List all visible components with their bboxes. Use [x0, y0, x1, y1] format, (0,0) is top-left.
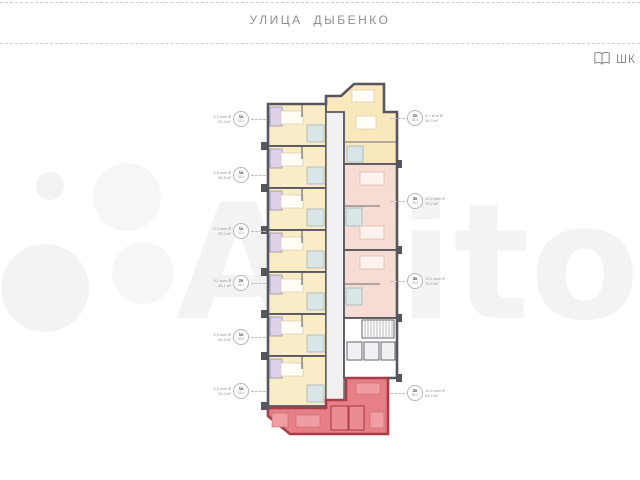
- wet-zone: [307, 125, 324, 142]
- connector-line: [390, 118, 405, 119]
- bathroom: [346, 208, 362, 226]
- unit-pricing: 10,8 млн ₽ 64,9 м²: [425, 388, 445, 399]
- unit-area: 76,5 м²: [425, 281, 445, 286]
- corridor: [326, 104, 344, 404]
- unit-pricing: 6,5 млн ₽ 34,0 м²: [213, 386, 231, 397]
- unit-badge-area: 64,9: [412, 394, 418, 397]
- unit-rooms-badge: 1к 36,8: [233, 167, 249, 183]
- wet-zone: [307, 209, 324, 226]
- unit-pricing: 6,9 млн ₽ 36,8 м²: [213, 332, 231, 343]
- unit-pricing: 12,4 млн ₽ 78,2 м²: [425, 196, 445, 207]
- connector-line: [251, 119, 266, 120]
- connector-line: [390, 281, 405, 282]
- unit-label-left[interactable]: 6,3 млн ₽ 32,4 м² 1к 32,4: [213, 223, 266, 239]
- furniture: [356, 383, 380, 394]
- furniture: [281, 111, 303, 124]
- unit-label-left[interactable]: 6,9 млн ₽ 36,8 м² 1к 36,8: [213, 329, 266, 345]
- unit-badge-area: 76,5: [412, 282, 418, 285]
- unit-rooms-badge: 3к 78,2: [407, 193, 423, 209]
- furniture: [281, 153, 303, 166]
- connector-line: [390, 201, 405, 202]
- unit-badge-area: 36,8: [238, 338, 244, 341]
- inner-room: [349, 406, 364, 430]
- furniture: [281, 363, 303, 376]
- apartment-left-4[interactable]: [268, 230, 326, 272]
- apartment-left-3[interactable]: [268, 188, 326, 230]
- building-floor-plan: [0, 0, 640, 480]
- unit-rooms-badge: 1к 34,0: [233, 383, 249, 399]
- bathroom: [270, 317, 282, 336]
- connector-line: [251, 231, 266, 232]
- connector-line: [251, 283, 266, 284]
- unit-pricing: 6,8 млн ₽ 36,8 м²: [213, 170, 231, 181]
- floorplan-screen: УЛИЦА ДЫБЕНКО ШК Avito: [0, 0, 640, 480]
- bathroom: [270, 149, 282, 168]
- furniture: [272, 413, 288, 427]
- connector-line: [251, 337, 266, 338]
- stair-elevator-core: [344, 318, 397, 378]
- unit-rooms-badge: 2к 45,1: [233, 275, 249, 291]
- unit-label-right[interactable]: 3к 78,2 12,4 млн ₽ 78,2 м²: [390, 193, 445, 209]
- wet-zone: [307, 251, 324, 268]
- furniture: [360, 226, 384, 239]
- unit-label-right[interactable]: 3к 76,5 12,1 млн ₽ 76,5 м²: [390, 273, 445, 289]
- furniture: [281, 321, 303, 334]
- bathroom: [347, 146, 363, 162]
- unit-label-left[interactable]: 6,8 млн ₽ 36,8 м² 1к 36,8: [213, 167, 266, 183]
- bathroom: [270, 191, 282, 210]
- apartment-left-6[interactable]: [268, 314, 326, 356]
- unit-rooms-badge: 1к 32,4: [233, 111, 249, 127]
- unit-area: 58,3 м²: [425, 118, 443, 123]
- bathroom: [270, 359, 282, 378]
- bathroom: [270, 107, 282, 126]
- apartment-left-7[interactable]: [268, 356, 326, 406]
- unit-badge-area: 32,4: [238, 232, 244, 235]
- unit-label-right[interactable]: 2к 64,9 10,8 млн ₽ 64,9 м²: [390, 385, 445, 401]
- unit-pricing: 8,1 млн ₽ 45,1 м²: [213, 278, 231, 289]
- bathroom: [346, 288, 362, 305]
- unit-badge-area: 32,4: [238, 120, 244, 123]
- apartment-left-5[interactable]: [268, 272, 326, 314]
- furniture: [360, 256, 384, 269]
- connector-line: [251, 175, 266, 176]
- unit-label-left[interactable]: 6,2 млн ₽ 32,4 м² 1к 32,4: [213, 111, 266, 127]
- unit-area: 45,1 м²: [213, 283, 231, 288]
- wet-zone: [307, 385, 324, 402]
- elevator: [364, 342, 379, 360]
- unit-area: 36,8 м²: [213, 175, 231, 180]
- furniture: [281, 195, 303, 208]
- unit-rooms-badge: 2к 58,3: [407, 110, 423, 126]
- unit-area: 32,4 м²: [213, 119, 231, 124]
- unit-area: 64,9 м²: [425, 393, 445, 398]
- wet-zone: [307, 335, 324, 352]
- furniture: [356, 116, 376, 129]
- furniture: [281, 237, 303, 250]
- unit-rooms-badge: 2к 64,9: [407, 385, 423, 401]
- furniture: [370, 412, 384, 428]
- wet-zone: [307, 293, 324, 310]
- unit-rooms-badge: 1к 36,8: [233, 329, 249, 345]
- unit-area: 36,8 м²: [213, 337, 231, 342]
- unit-area: 78,2 м²: [425, 201, 445, 206]
- unit-pricing: 12,1 млн ₽ 76,5 м²: [425, 276, 445, 287]
- furniture: [281, 279, 303, 292]
- apartment-left-1[interactable]: [268, 104, 326, 146]
- unit-pricing: 9,7 млн ₽ 58,3 м²: [425, 113, 443, 124]
- connector-line: [390, 393, 405, 394]
- unit-badge-area: 78,2: [412, 202, 418, 205]
- unit-label-left[interactable]: 6,5 млн ₽ 34,0 м² 1к 34,0: [213, 383, 266, 399]
- furniture: [296, 415, 320, 427]
- bathroom: [270, 233, 282, 252]
- elevator: [347, 342, 362, 360]
- unit-pricing: 6,3 млн ₽ 32,4 м²: [213, 226, 231, 237]
- unit-badge-area: 58,3: [412, 119, 418, 122]
- furniture: [360, 172, 384, 185]
- inner-room: [331, 406, 348, 430]
- furniture: [352, 90, 374, 102]
- unit-badge-area: 36,8: [238, 176, 244, 179]
- unit-label-left[interactable]: 8,1 млн ₽ 45,1 м² 2к 45,1: [213, 275, 266, 291]
- unit-pricing: 6,2 млн ₽ 32,4 м²: [213, 114, 231, 125]
- bathroom: [270, 275, 282, 294]
- apartment-left-2[interactable]: [268, 146, 326, 188]
- unit-area: 32,4 м²: [213, 231, 231, 236]
- unit-rooms-badge: 3к 76,5: [407, 273, 423, 289]
- elevator: [381, 342, 395, 360]
- unit-area: 34,0 м²: [213, 391, 231, 396]
- connector-line: [251, 391, 266, 392]
- wet-zone: [307, 167, 324, 184]
- unit-badge-area: 34,0: [238, 392, 244, 395]
- unit-badge-area: 45,1: [238, 284, 244, 287]
- unit-label-right[interactable]: 2к 58,3 9,7 млн ₽ 58,3 м²: [390, 110, 443, 126]
- unit-rooms-badge: 1к 32,4: [233, 223, 249, 239]
